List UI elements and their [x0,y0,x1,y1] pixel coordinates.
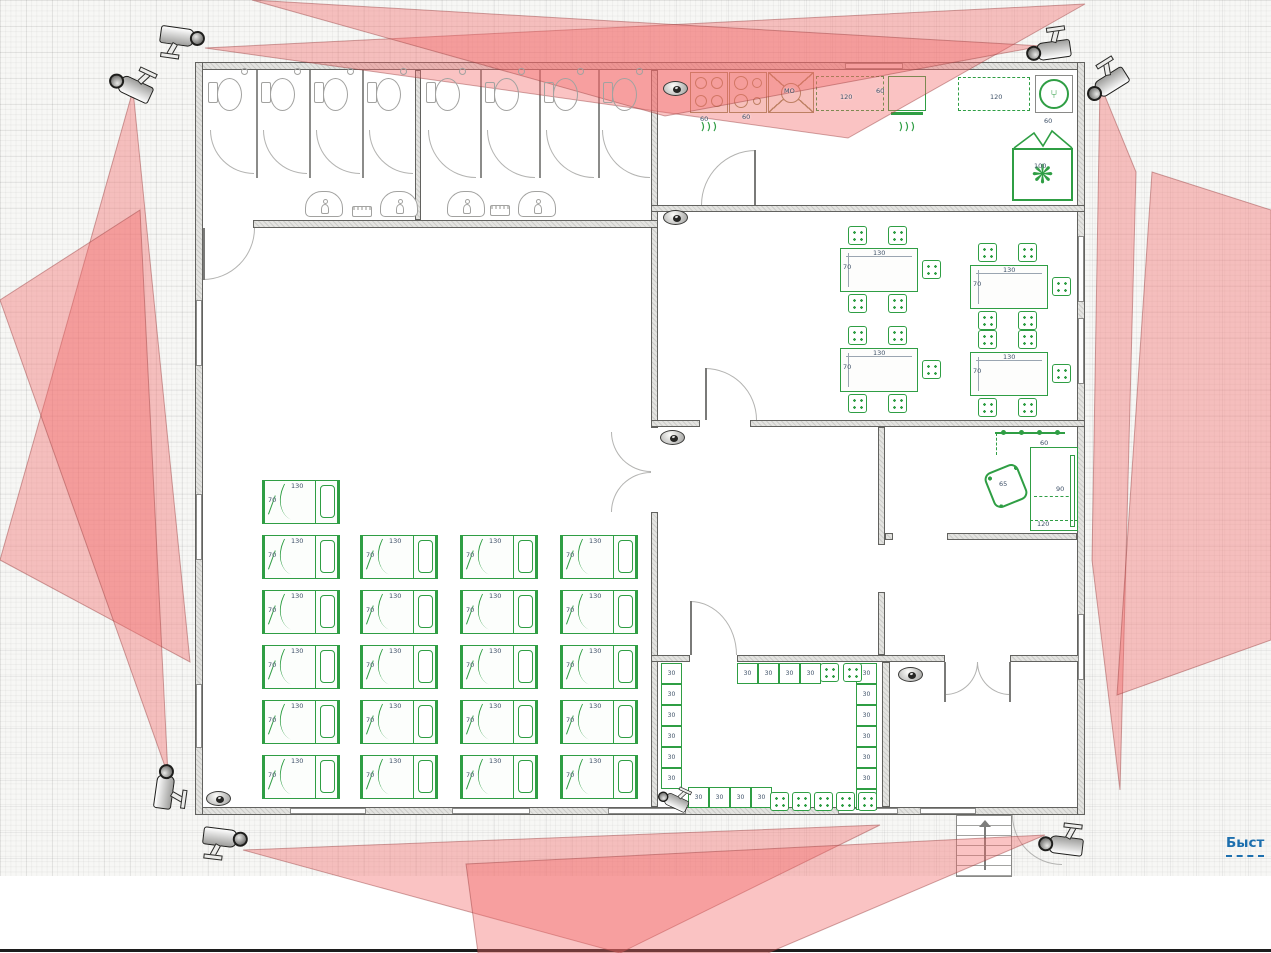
dimension-label: 130 [389,758,401,765]
burner [711,95,723,107]
dimension-label: 60 [700,116,708,123]
dimension-label: 70 [268,607,276,614]
burner [695,95,707,107]
cam-bottom-left-right[interactable] [199,820,252,870]
bed-detail [315,481,316,523]
dining-table[interactable]: 13070 [970,265,1048,309]
locker[interactable]: 30 [856,684,877,705]
toilet-bowl [270,78,295,111]
wall-bathroom-bottom [253,220,658,228]
cam-top-right-outer[interactable] [1019,19,1073,69]
cam-storage[interactable] [898,667,923,682]
chair[interactable] [843,663,862,682]
bed[interactable]: 13070 [360,590,438,634]
coat-rack[interactable] [995,432,1065,434]
pillow [618,595,633,628]
dimension-label: 70 [566,717,574,724]
toilet-tank [367,82,377,103]
heat-waves-icon [896,118,918,133]
dimension-label: 130 [389,538,401,545]
bed[interactable]: 13070 [360,755,438,799]
rack-post [996,433,999,455]
stall-divider [256,70,258,178]
dimension-label: 130 [873,250,885,257]
locker[interactable]: 30 [758,663,779,684]
toilet-tank [603,82,613,103]
cam-hall[interactable] [660,430,685,445]
locker[interactable]: 30 [800,663,821,684]
bed-detail [513,591,514,633]
dimension-label: 70 [466,607,474,614]
pillow [518,595,533,628]
utensils-icon: ⑂ [1039,79,1069,109]
dimension-label: 70 [566,662,574,669]
locker[interactable]: 30 [856,768,877,789]
pillow [320,595,335,628]
wall-center-upper [651,70,658,428]
bed[interactable]: 13070 [560,590,638,634]
bed[interactable]: 13070 [460,535,538,579]
sink-fct [534,204,542,214]
pillow [418,540,433,573]
locker[interactable]: 30 [737,663,758,684]
wall-kitchen-bottom [651,205,1085,212]
hook [1019,430,1024,435]
fridge-top-flaps [1012,129,1074,149]
dimension-label: 130 [489,538,501,545]
burner [695,77,707,89]
bed-detail [613,646,614,688]
hall-door-leaf [690,601,692,655]
dimension-label: 70 [566,772,574,779]
toilet-bowl [376,78,401,111]
dimension-label: 130 [389,648,401,655]
locker[interactable]: 30 [856,747,877,768]
bottom-divider-line [0,949,1271,952]
dimension-label: МО [784,88,795,95]
burner [734,76,748,90]
chair[interactable] [1018,243,1037,262]
storage-door-jamb [944,662,946,702]
dimension-label: 65 [999,481,1007,488]
toilet[interactable] [601,66,645,124]
page-margin [0,876,1271,953]
toilet[interactable] [206,66,250,124]
chair[interactable] [888,226,907,245]
cooktop-2-zone[interactable] [729,72,767,113]
dimension-label: 60 [742,114,750,121]
cam-dorm[interactable] [206,791,231,806]
dimension-label: 130 [589,703,601,710]
dimension-label: 130 [589,538,601,545]
dimension-label: 70 [566,552,574,559]
locker[interactable]: 30 [856,726,877,747]
toilet-bowl [323,78,348,111]
toilet[interactable] [542,66,586,124]
dimension-label: 130 [389,703,401,710]
bed-detail [413,646,414,688]
toilet-bowl [435,78,460,111]
dimension-label: 130 [291,483,303,490]
chair[interactable] [888,394,907,413]
wall-locker-right [882,662,890,807]
dimension-label: 70 [268,717,276,724]
pillow [418,595,433,628]
toilet-btn [636,68,643,75]
wall-dining-bottom-b [750,420,1085,427]
bed-detail [315,591,316,633]
refrigerator[interactable]: ❋ [1012,148,1073,201]
window [196,494,202,560]
bed[interactable]: 13070 [560,700,638,744]
cam-bottom-right[interactable] [1033,813,1086,863]
toilet[interactable] [259,66,303,124]
cam-dining[interactable] [663,210,688,225]
pillow [418,705,433,738]
burner [734,94,748,108]
locker[interactable]: 30 [709,787,730,808]
wall-storage-top [1010,655,1085,662]
pillow [618,760,633,793]
dimension-label: 70 [566,607,574,614]
toilet-btn [347,68,354,75]
dimension-label: 70 [466,772,474,779]
window [452,808,530,814]
sink-fct [396,204,404,214]
window [196,684,202,748]
chair[interactable] [848,226,867,245]
toilet-tank [208,82,218,103]
soap-dispenser [490,205,510,216]
stall-divider [362,70,364,178]
wall-hall-right-a [878,427,885,545]
bed-detail [613,591,614,633]
cctv-camera-icon [180,790,188,810]
floor-plan-canvas: ⑂ ❋ Быст 1307013070130701307013070130701… [0,0,1271,953]
desk-inner-line [1034,451,1074,497]
sink[interactable] [518,191,556,217]
bed[interactable]: 13070 [460,645,538,689]
dimension-label: 130 [589,648,601,655]
dimension-label: 70 [466,717,474,724]
dining-table[interactable]: 13070 [970,352,1048,396]
toilet-bowl [612,78,637,111]
chair[interactable] [1018,330,1037,349]
locker[interactable]: 30 [661,747,682,768]
desk-side-panel [1070,455,1075,527]
pillow [320,705,335,738]
pillow [518,540,533,573]
pillow [518,650,533,683]
dimension-label: 130 [489,758,501,765]
bed-detail [513,756,514,798]
bed-detail [315,701,316,743]
locker[interactable]: 30 [751,787,772,808]
wall-right [1077,62,1085,815]
pillow [618,705,633,738]
chair[interactable] [888,326,907,345]
pillow [618,540,633,573]
dimension-label: 130 [1003,354,1015,361]
dorm-door-leaf [203,228,205,280]
dimension-label: 70 [366,772,374,779]
stall-divider [598,70,600,178]
dining-door-leaf [705,368,707,420]
wall-bathroom-mid [415,70,421,220]
stairs-up-arrow [984,824,986,870]
cam-top-left-outer[interactable] [156,19,210,69]
dimension-label: 70 [366,662,374,669]
quick-link[interactable]: Быст [1226,835,1264,857]
wall-office-bottom-a [885,533,893,540]
toilet-btn [400,68,407,75]
bed[interactable]: 13070 [560,755,638,799]
window [920,808,976,814]
pillow [320,760,335,793]
pillow [320,650,335,683]
sink-fct [321,204,329,214]
toilet-bowl [553,78,578,111]
pillow [418,650,433,683]
bed-detail [513,646,514,688]
pillow [320,485,335,518]
pillow [518,760,533,793]
dimension-label: 70 [366,607,374,614]
bed-detail [413,701,414,743]
toilet-bowl [217,78,242,111]
bed[interactable]: 13070 [262,535,340,579]
dimension-label: 130 [291,648,303,655]
chair[interactable] [922,360,941,379]
chair[interactable] [848,394,867,413]
chair[interactable] [814,792,833,811]
wall-office-bottom-b [947,533,1077,540]
dimension-label: 60 [1040,440,1048,447]
dimension-label: 70 [268,772,276,779]
oven[interactable] [888,76,926,111]
dimension-label: 90 [1056,486,1064,493]
window [290,808,366,814]
dimension-label: 70 [466,552,474,559]
dimension-label: 130 [291,758,303,765]
quick-link-label: Быст [1226,835,1264,851]
toilet-tank [544,82,554,103]
dimension-label: 130 [489,703,501,710]
chair[interactable] [978,243,997,262]
toilet-btn [459,68,466,75]
toilet[interactable] [312,66,356,124]
dimension-label: 120 [840,94,852,101]
toilet-btn [518,68,525,75]
bed-detail [613,536,614,578]
bed[interactable]: 13070 [360,700,438,744]
storage-door-jamb [1009,662,1011,702]
chair[interactable] [770,792,789,811]
chair[interactable] [1018,398,1037,417]
locker[interactable]: 30 [661,663,682,684]
burner [752,78,762,88]
stall-divider [309,70,311,178]
bed-detail [315,646,316,688]
cooktop-4-burner[interactable] [690,72,728,113]
dining-table[interactable]: 13070 [840,248,918,292]
burner [753,97,761,105]
stairs-arrow-head [979,820,991,827]
soap-dispenser [352,206,372,217]
bed[interactable]: 13070 [262,480,340,524]
window [845,63,903,69]
cctv-camera-icon [160,52,180,60]
bed[interactable]: 13070 [460,590,538,634]
bed-detail [315,536,316,578]
stall-divider [480,70,482,178]
dimension-label: 130 [389,593,401,600]
sink-fct [463,204,471,214]
hook [1055,430,1060,435]
chair[interactable] [1018,311,1037,330]
dimension-label: 130 [489,593,501,600]
dimension-label: 70 [268,497,276,504]
toilet[interactable] [424,66,468,124]
bed[interactable]: 13070 [262,645,340,689]
dimension-label: 70 [843,264,851,271]
pillow [618,650,633,683]
bed-detail [613,701,614,743]
chair[interactable] [978,330,997,349]
locker[interactable]: 30 [779,663,800,684]
wall-locker-top-b [737,655,945,662]
locker[interactable]: 30 [661,705,682,726]
hook [1001,430,1006,435]
bed[interactable]: 13070 [360,535,438,579]
bed[interactable]: 13070 [560,535,638,579]
bed[interactable]: 13070 [262,590,340,634]
wall-locker-top-a [651,655,690,662]
dimension-label: 130 [589,758,601,765]
cctv-camera-icon [203,853,222,860]
toilet-btn [577,68,584,75]
bed-detail [413,536,414,578]
oven-base [891,112,923,115]
chair[interactable] [888,294,907,313]
dimension-label: 130 [291,593,303,600]
cam-bottom-left-up[interactable] [147,759,197,813]
pillow [518,705,533,738]
chair[interactable] [836,792,855,811]
toilet-btn [294,68,301,75]
dimension-label: 120 [990,94,1002,101]
chair[interactable] [848,326,867,345]
bed-detail [513,536,514,578]
sink[interactable] [447,191,485,217]
dimension-label: 60 [1044,118,1052,125]
chair[interactable] [848,294,867,313]
dimension-label: 120 [1037,521,1049,528]
dimension-label: 130 [291,703,303,710]
bed[interactable]: 13070 [460,700,538,744]
wall-dining-bottom-a [651,420,700,427]
dimension-label: 130 [589,593,601,600]
dimension-label: 130 [489,648,501,655]
chair[interactable] [820,663,839,682]
dimension-label: 70 [973,281,981,288]
chair[interactable] [1052,364,1071,383]
kitchen-door-leaf [754,150,756,205]
toilet-tank [261,82,271,103]
bed-detail [413,591,414,633]
toilet[interactable] [365,66,409,124]
cctv-camera-icon [1063,822,1082,829]
window [1078,236,1084,302]
dimension-label: 130 [1003,267,1015,274]
dimension-label: 130 [291,538,303,545]
toilet-tank [314,82,324,103]
bed[interactable]: 13070 [262,755,340,799]
bed[interactable]: 13070 [360,645,438,689]
toilet-bowl [494,78,519,111]
chair[interactable] [858,792,877,811]
chair[interactable] [1052,277,1071,296]
hook [1037,430,1042,435]
locker[interactable]: 30 [661,684,682,705]
locker[interactable]: 30 [661,726,682,747]
dining-table[interactable]: 13070 [840,348,918,392]
window [1078,318,1084,384]
toilet-btn [241,68,248,75]
bed-detail [513,701,514,743]
dimension-label: 70 [843,364,851,371]
dimension-label: 70 [268,552,276,559]
chair[interactable] [978,311,997,330]
dimension-label: 70 [366,552,374,559]
stove-icon-box[interactable]: ⑂ [1035,75,1073,113]
pillow [320,540,335,573]
stall-divider [539,70,541,178]
pillow [418,760,433,793]
window [1078,614,1084,680]
dimension-label: 70 [466,662,474,669]
chair[interactable] [792,792,811,811]
toilet-tank [426,82,436,103]
burner [711,77,723,89]
staircase [956,815,1012,877]
cam-kitchen[interactable] [663,81,688,96]
dimension-label: 70 [973,368,981,375]
bed-detail [613,756,614,798]
chair[interactable] [922,260,941,279]
bed[interactable]: 13070 [460,755,538,799]
wall-hall-right-b [878,592,885,655]
toilet-tank [485,82,495,103]
bed[interactable]: 13070 [262,700,340,744]
bed-detail [413,756,414,798]
chair[interactable] [978,398,997,417]
bed-detail [315,756,316,798]
sink[interactable] [305,191,343,217]
dimension-label: 130 [873,350,885,357]
dimension-label: 70 [366,717,374,724]
toilet[interactable] [483,66,527,124]
window [196,300,202,366]
locker[interactable]: 30 [856,705,877,726]
dimension-label: 100 [1034,163,1046,170]
dimension-label: 70 [268,662,276,669]
locker[interactable]: 30 [730,787,751,808]
sink[interactable] [380,191,418,217]
bed[interactable]: 13070 [560,645,638,689]
dimension-label: 60 [876,88,884,95]
